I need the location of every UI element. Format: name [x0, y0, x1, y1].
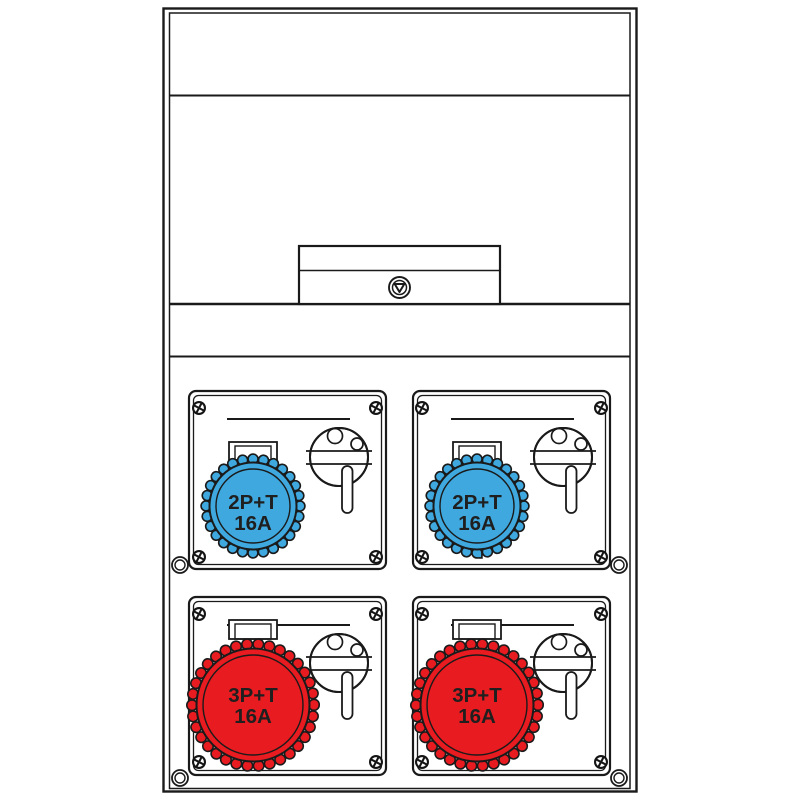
mounting-hole: [172, 770, 188, 786]
interlock-lever: [566, 466, 577, 513]
interlock-detail-hole: [552, 635, 567, 650]
socket-label-line1: 2P+T: [452, 491, 502, 514]
cable-entry-plate: [299, 246, 500, 304]
socket-lid-hinge: [229, 620, 277, 639]
socket-blue-2pt: 2P+T 16A: [430, 459, 524, 553]
interlock-lever: [342, 466, 353, 513]
socket-label-line2: 16A: [234, 512, 272, 535]
socket-module-bottom-left: 3P+T 16A: [189, 597, 386, 775]
socket-label-line1: 2P+T: [228, 491, 278, 514]
socket-label-line1: 3P+T: [452, 684, 502, 707]
interlock-detail-hole: [328, 429, 343, 444]
interlock-detail-hole: [328, 635, 343, 650]
triangle-key-screw-icon: [389, 277, 410, 298]
socket-red-3pt: 3P+T 16A: [192, 644, 314, 766]
interlock-lever: [566, 672, 577, 719]
interlock-detail-hole: [552, 429, 567, 444]
distribution-box-drawing: 2P+T 16A 2P+T 16A: [0, 0, 800, 800]
interlock-lever: [342, 672, 353, 719]
mounting-hole: [172, 557, 188, 573]
socket-module-bottom-right: 3P+T 16A: [413, 597, 610, 775]
diagram-canvas: 2P+T 16A 2P+T 16A: [0, 0, 800, 800]
socket-module-top-right: 2P+T 16A: [413, 391, 610, 569]
socket-label-line2: 16A: [234, 705, 272, 728]
socket-label-line2: 16A: [458, 512, 496, 535]
mounting-hole: [611, 770, 627, 786]
socket-lid-hinge: [453, 620, 501, 639]
socket-blue-2pt: 2P+T 16A: [206, 459, 300, 553]
mounting-hole: [611, 557, 627, 573]
socket-module-top-left: 2P+T 16A: [189, 391, 386, 569]
socket-label-line1: 3P+T: [228, 684, 278, 707]
socket-label-line2: 16A: [458, 705, 496, 728]
socket-red-3pt: 3P+T 16A: [416, 644, 538, 766]
